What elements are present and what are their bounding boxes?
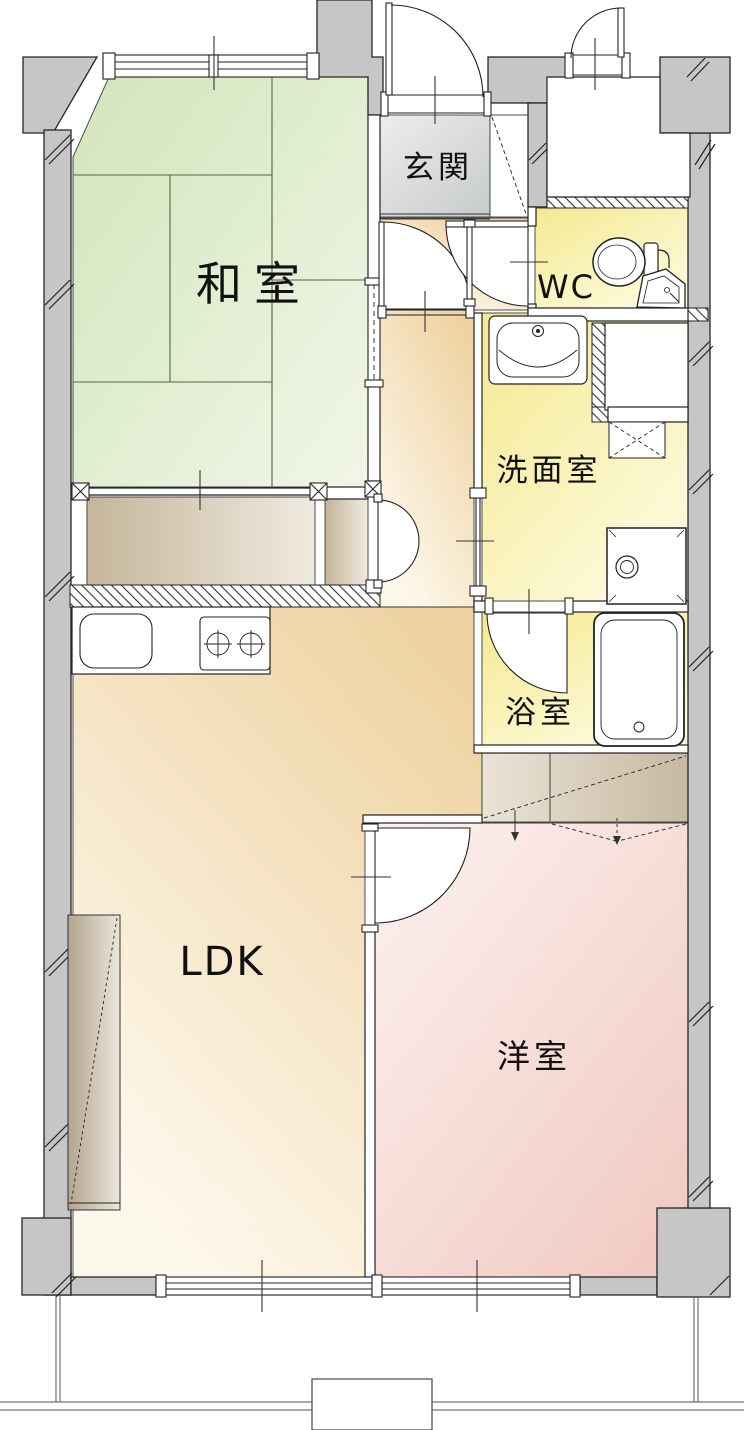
ldk-cabinet: [68, 915, 120, 1210]
post-x: [310, 483, 327, 500]
wall-bottom-left-band: [71, 1277, 158, 1295]
wall-yoshitsu-left: [365, 931, 375, 1277]
wall-washitsu-east-upper: [368, 115, 380, 282]
wall-bottom-right-band: [580, 1277, 657, 1295]
oshiire-right: [325, 497, 368, 585]
label-genkan: 玄関: [403, 150, 473, 186]
wall-corner-bottom-right: [657, 1208, 730, 1297]
wall-oshiire-right-band: [325, 487, 368, 499]
ldk-window: [156, 1277, 372, 1295]
washbasin: [489, 316, 587, 384]
floor-plan: 和室 玄関 WC 洗面室 浴室 LDK 洋室: [0, 0, 744, 1430]
label-washitsu: 和室: [196, 257, 312, 311]
balcony: [0, 1295, 744, 1430]
wall-right: [688, 133, 710, 1208]
floor-plan-svg: 和室 玄関 WC 洗面室 浴室 LDK 洋室: [0, 0, 744, 1430]
balcony-partition: [312, 1379, 432, 1430]
wall-wc-left-a: [528, 207, 536, 226]
ps-band: [608, 407, 688, 422]
washer-pan: [607, 528, 686, 604]
wall-storage-left: [528, 103, 547, 207]
post-x: [72, 483, 89, 500]
entrance-door: [381, 3, 491, 116]
label-yoshitsu: 洋室: [497, 1037, 571, 1076]
wall-closet-yoshitsu: [363, 815, 482, 823]
bathtub: [594, 613, 684, 746]
label-wc: WC: [537, 268, 595, 306]
wall-foot-bottom-left: [22, 1218, 71, 1295]
kitchen-sink: [80, 614, 152, 668]
yoshitsu-window: [382, 1277, 580, 1295]
label-ldk: LDK: [179, 939, 264, 985]
kitchen-counter: [72, 607, 270, 674]
ps-shaft: [605, 323, 688, 410]
oshiire-left: [87, 497, 315, 585]
washing-machine-space: [609, 422, 665, 458]
wall-corner-top-left: [23, 57, 97, 133]
wall-washitsu-east-lower: [368, 383, 380, 481]
storage-door: [565, 8, 630, 78]
wall-left: [44, 130, 71, 1295]
label-senmenshitsu: 洗面室: [497, 453, 602, 489]
wall-senmen-left-a: [474, 313, 482, 490]
senmen-sliding-door: [476, 498, 480, 588]
label-yokushitsu: 浴室: [505, 695, 575, 731]
